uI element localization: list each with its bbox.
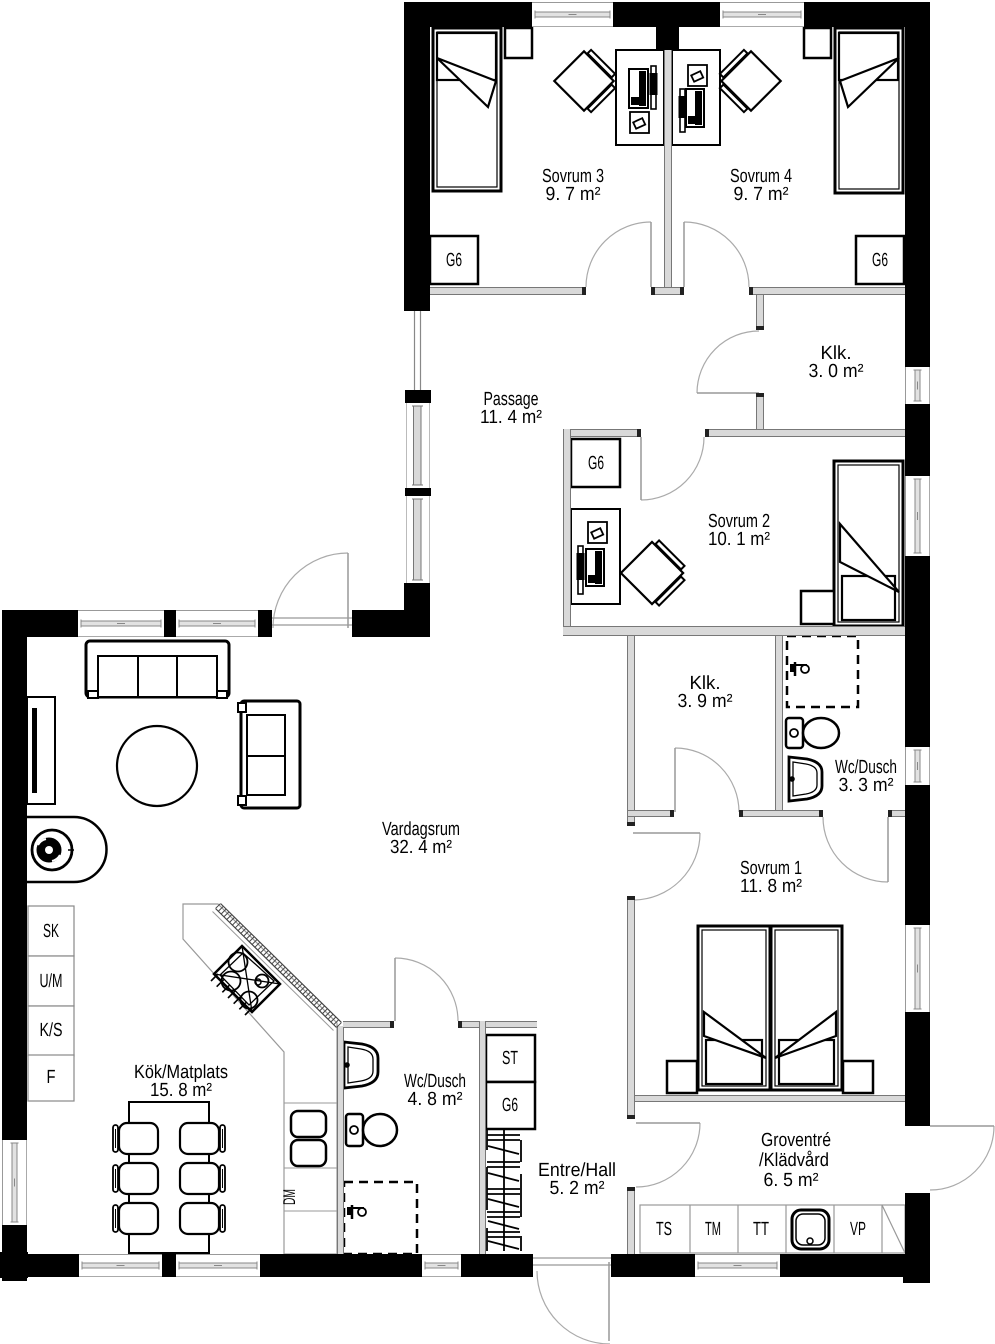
svg-text:4. 8 m²: 4. 8 m² xyxy=(408,1089,463,1110)
svg-text:15. 8 m²: 15. 8 m² xyxy=(150,1080,212,1101)
svg-text:TT: TT xyxy=(753,1219,769,1240)
svg-text:G6: G6 xyxy=(446,250,462,271)
svg-text:3. 9 m²: 3. 9 m² xyxy=(678,691,733,712)
svg-text:Groventré: Groventré xyxy=(761,1130,831,1151)
svg-text:11. 8 m²: 11. 8 m² xyxy=(740,876,802,897)
svg-text:G6: G6 xyxy=(588,453,604,474)
svg-text:9. 7 m²: 9. 7 m² xyxy=(734,184,789,205)
svg-text:U/M: U/M xyxy=(40,971,63,992)
svg-text:K/S: K/S xyxy=(40,1020,63,1041)
svg-text:SK: SK xyxy=(43,921,59,942)
svg-text:3. 0 m²: 3. 0 m² xyxy=(809,361,864,382)
svg-text:/Klädvård: /Klädvård xyxy=(759,1150,829,1171)
svg-text:G6: G6 xyxy=(502,1095,518,1116)
svg-text:DM: DM xyxy=(280,1189,299,1205)
svg-text:TS: TS xyxy=(656,1219,672,1240)
svg-text:5. 2 m²: 5. 2 m² xyxy=(550,1178,605,1199)
svg-text:9. 7 m²: 9. 7 m² xyxy=(546,184,601,205)
svg-text:10. 1 m²: 10. 1 m² xyxy=(708,529,770,550)
svg-text:G6: G6 xyxy=(872,250,888,271)
svg-text:F: F xyxy=(47,1067,56,1088)
svg-text:ST: ST xyxy=(502,1048,518,1069)
svg-text:3. 3 m²: 3. 3 m² xyxy=(839,775,894,796)
svg-text:TM: TM xyxy=(705,1219,721,1240)
svg-text:11. 4 m²: 11. 4 m² xyxy=(480,407,542,428)
svg-text:32. 4 m²: 32. 4 m² xyxy=(390,837,452,858)
svg-text:VP: VP xyxy=(850,1219,866,1240)
svg-text:6. 5 m²: 6. 5 m² xyxy=(764,1170,819,1191)
